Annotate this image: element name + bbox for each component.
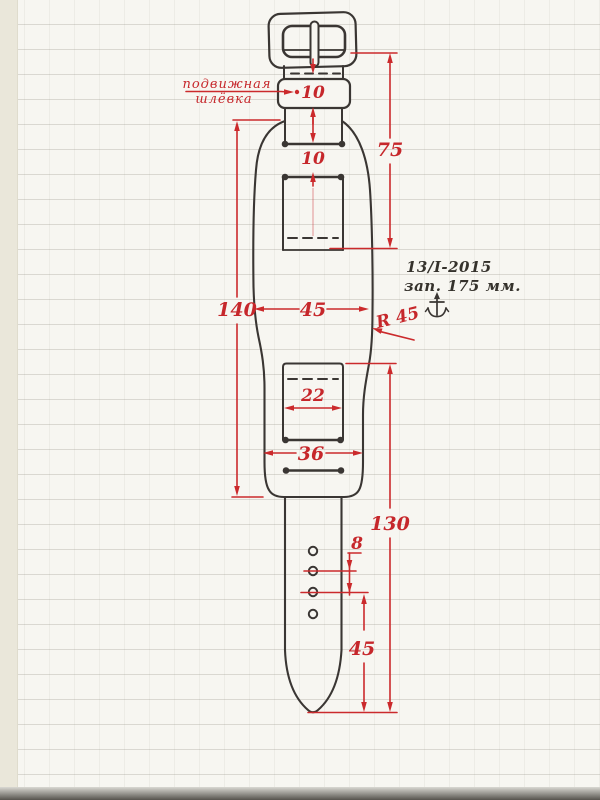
scanned-drawing-page: подвижная шлёвка 10 10 75 [0, 0, 600, 800]
slot-end-dot [338, 467, 345, 474]
arrowhead [347, 583, 353, 593]
leader-dot [295, 90, 299, 94]
slot-end-dot [282, 141, 289, 148]
window-corner-dot [282, 437, 289, 444]
arrowhead [234, 486, 240, 496]
arrowhead [387, 238, 393, 248]
arrowhead [347, 560, 353, 570]
exit-slot [283, 467, 345, 474]
loop-label-line1: подвижная [182, 77, 271, 92]
dimension-value: 36 [298, 443, 324, 465]
loop-label-line2: шлёвка [195, 92, 252, 107]
dimension-value: 10 [301, 149, 325, 169]
window-corner-dot [337, 437, 344, 444]
scan-bottom-edge [0, 787, 600, 800]
dimension-value: 8 [350, 534, 363, 554]
note-length: зап. 175 мм. [404, 277, 521, 295]
dimension-slot-gap: 10 [301, 117, 325, 186]
dimension-value: 45 [349, 638, 375, 660]
radius-value: R 45 [373, 303, 421, 333]
strap-hole [309, 610, 317, 618]
note-date: 13/I-2015 [406, 258, 492, 276]
dimension-45-width: 45 [254, 299, 369, 321]
dimension-value: 130 [370, 513, 410, 535]
upper-slot [282, 141, 346, 148]
dimension-8: 8 [301, 534, 368, 595]
leader-line [378, 331, 414, 340]
arrowhead [359, 306, 369, 312]
arrowhead [332, 405, 342, 411]
strap-hole [309, 547, 317, 555]
buckle-prong [311, 22, 319, 67]
dimension-36: 36 [263, 443, 363, 465]
arrowhead [387, 702, 393, 712]
radius-callout: R 45 [372, 303, 421, 340]
dimension-value: 10 [301, 83, 325, 103]
dimension-45-tip: 45 [349, 594, 375, 712]
dimension-value: 45 [300, 299, 326, 321]
anchor-icon [426, 292, 449, 317]
dimension-loop-width: 10 [301, 59, 325, 124]
slot-end-dot [339, 141, 346, 148]
note-block: 13/I-2015 зап. 175 мм. [404, 258, 521, 317]
dimension-value: 22 [300, 386, 325, 406]
arrowhead [353, 450, 363, 456]
dimension-value: 140 [217, 299, 257, 321]
leader-line [186, 92, 288, 93]
dimension-22: 22 [284, 386, 342, 411]
arrowhead [361, 702, 367, 712]
watch-strap-technical-drawing: подвижная шлёвка 10 10 75 [0, 0, 600, 800]
strap-tail-outline [285, 497, 342, 712]
strap-tail [285, 497, 342, 712]
dimension-value: 75 [377, 139, 403, 161]
arrowhead [310, 133, 316, 143]
slot-end-dot [283, 467, 290, 474]
